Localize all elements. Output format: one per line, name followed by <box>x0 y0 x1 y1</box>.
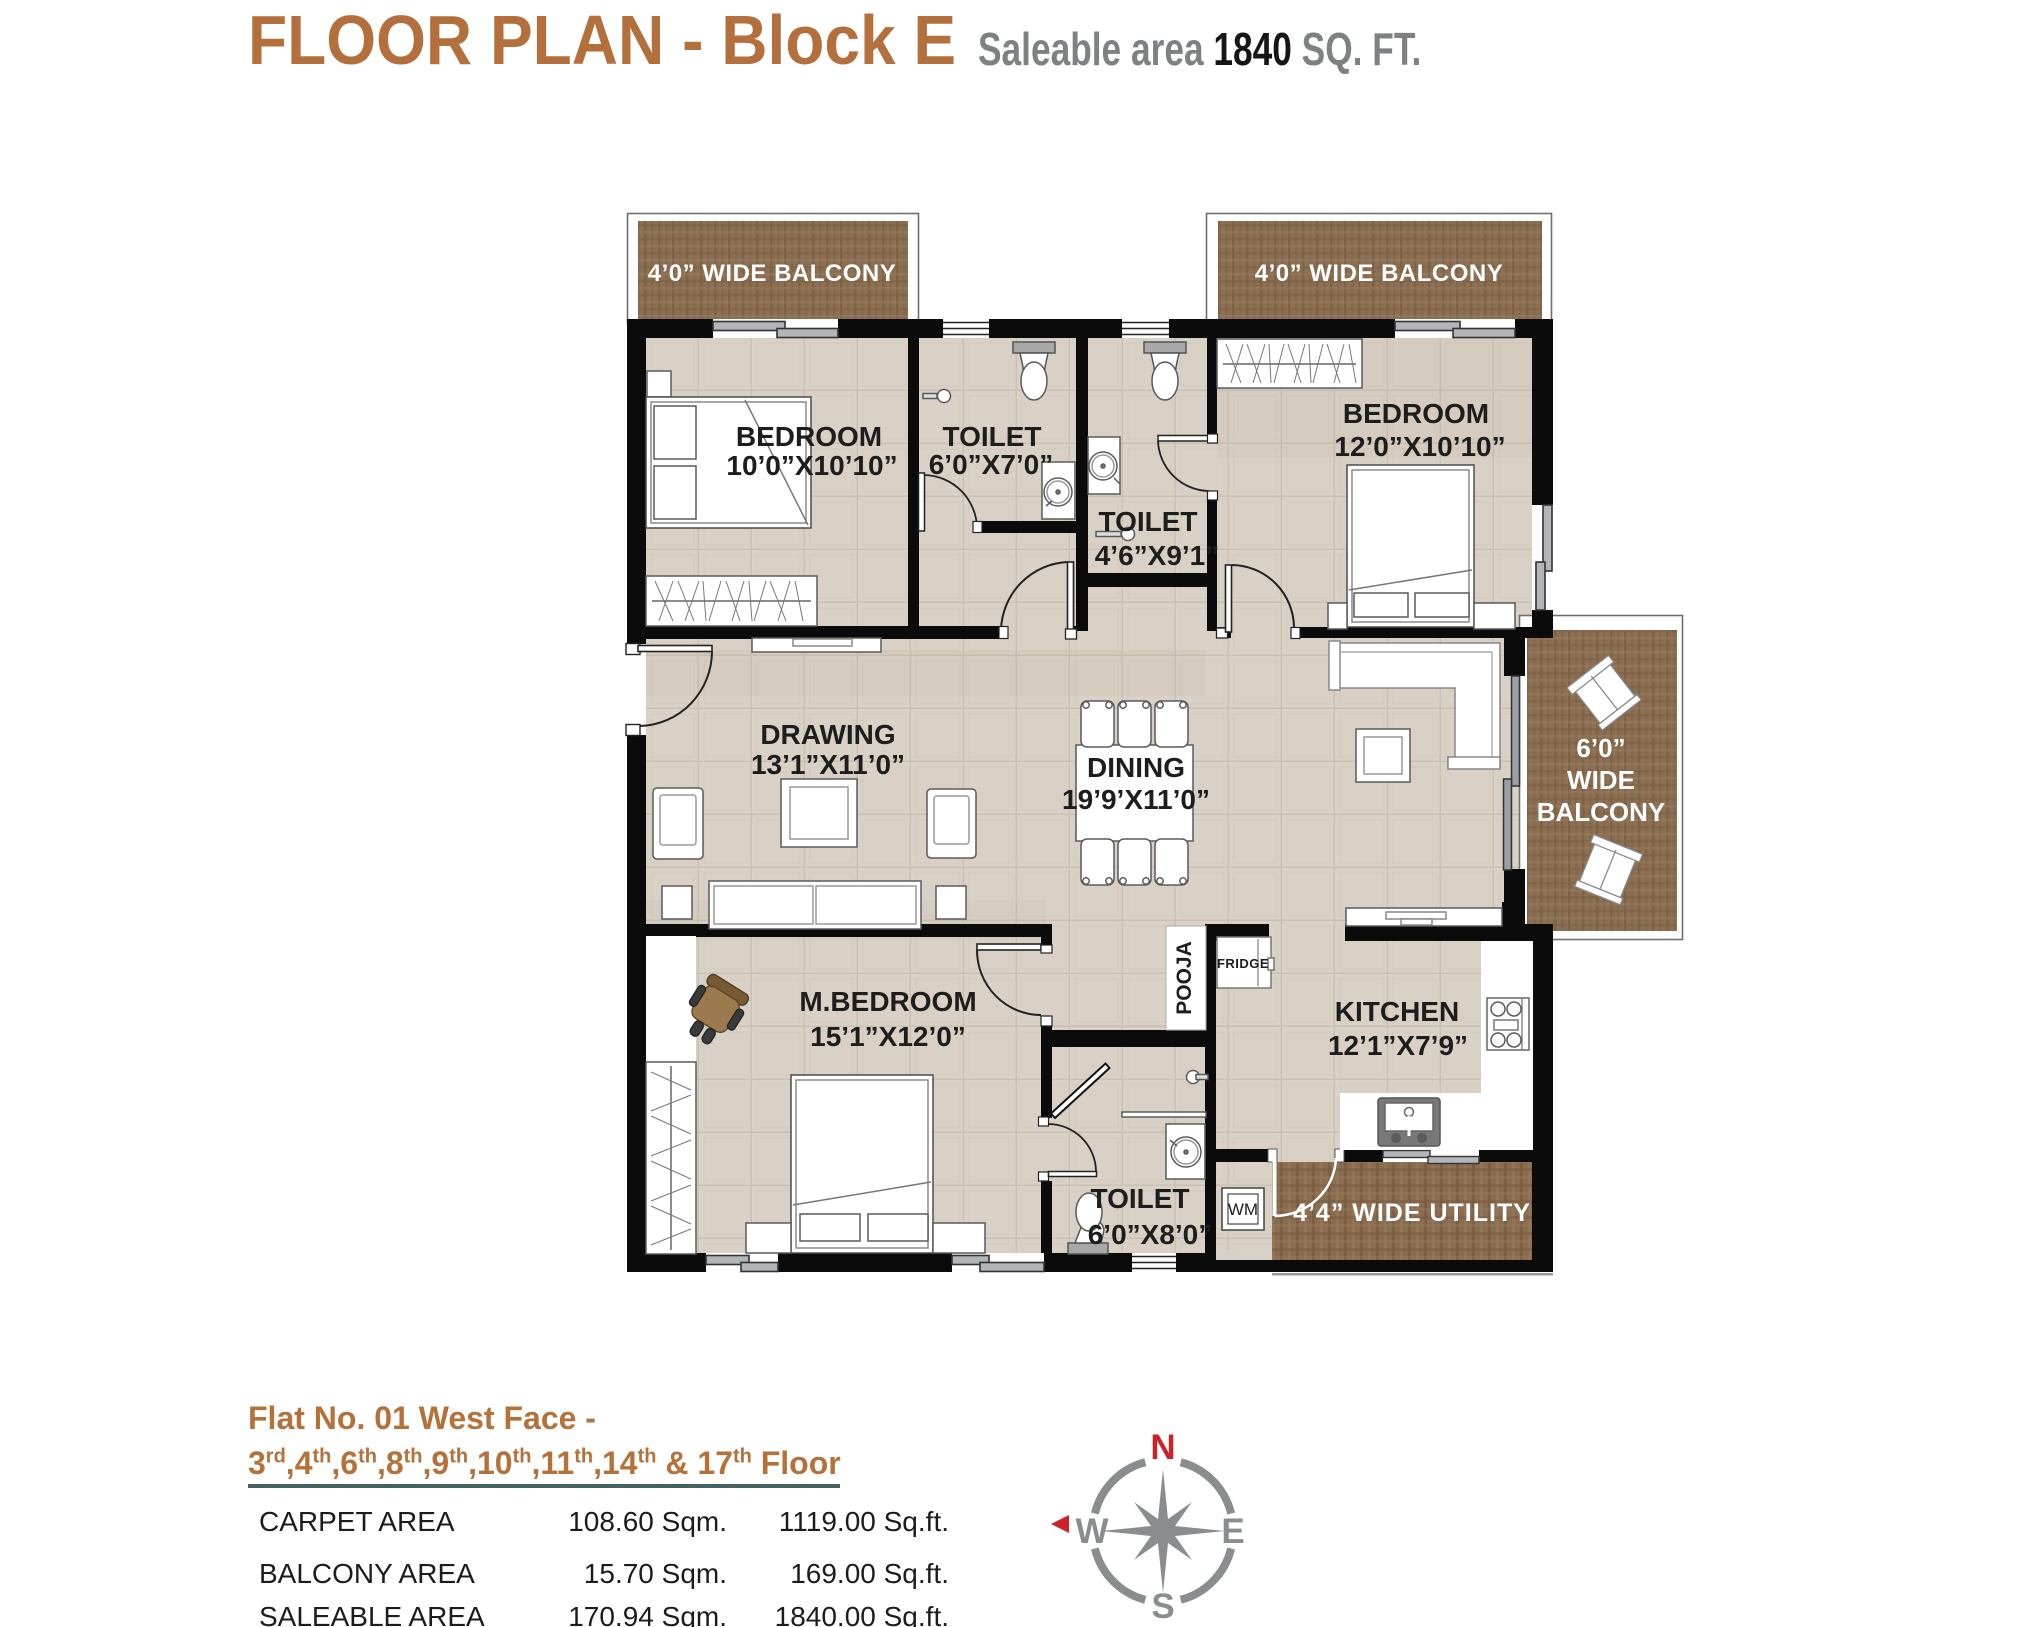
svg-text:E: E <box>1221 1512 1244 1551</box>
svg-text:10’0”X10’10”: 10’0”X10’10” <box>726 450 897 481</box>
svg-text:4’0” WIDE BALCONY: 4’0” WIDE BALCONY <box>648 260 897 287</box>
svg-text:WM: WM <box>1228 1200 1258 1219</box>
svg-text:KITCHEN: KITCHEN <box>1335 996 1459 1027</box>
svg-text:BEDROOM: BEDROOM <box>736 421 882 452</box>
svg-text:N: N <box>1150 1428 1175 1467</box>
svg-text:M.BEDROOM: M.BEDROOM <box>799 986 976 1017</box>
svg-text:4’6”X9’1”: 4’6”X9’1” <box>1095 540 1220 571</box>
svg-text:BALCONY: BALCONY <box>1537 797 1666 827</box>
svg-text:15’1”X12’0”: 15’1”X12’0” <box>810 1021 966 1052</box>
svg-text:POOJA: POOJA <box>1173 941 1196 1015</box>
svg-text:12’0”X10’10”: 12’0”X10’10” <box>1334 431 1505 462</box>
svg-text:BEDROOM: BEDROOM <box>1343 398 1489 429</box>
svg-text:TOILET: TOILET <box>942 421 1041 452</box>
svg-text:WIDE: WIDE <box>1567 765 1635 795</box>
svg-text:6’0”: 6’0” <box>1576 733 1625 763</box>
svg-text:W: W <box>1075 1512 1108 1551</box>
svg-text:4’0” WIDE BALCONY: 4’0” WIDE BALCONY <box>1255 260 1504 287</box>
svg-text:6’0”X8’0”: 6’0”X8’0” <box>1088 1219 1213 1250</box>
svg-text:4’4” WIDE UTILITY: 4’4” WIDE UTILITY <box>1293 1199 1531 1227</box>
svg-text:DINING: DINING <box>1087 752 1185 783</box>
svg-text:19’9’X11’0”: 19’9’X11’0” <box>1062 784 1210 815</box>
svg-text:FRIDGE: FRIDGE <box>1217 956 1269 971</box>
svg-text:S: S <box>1151 1587 1174 1626</box>
svg-text:6’0”X7’0”: 6’0”X7’0” <box>929 449 1054 480</box>
svg-text:DRAWING: DRAWING <box>760 719 895 750</box>
svg-text:13’1”X11’0”: 13’1”X11’0” <box>751 749 905 780</box>
svg-text:TOILET: TOILET <box>1090 1183 1189 1214</box>
svg-text:TOILET: TOILET <box>1098 506 1197 537</box>
svg-text:12’1”X7’9”: 12’1”X7’9” <box>1328 1030 1468 1061</box>
